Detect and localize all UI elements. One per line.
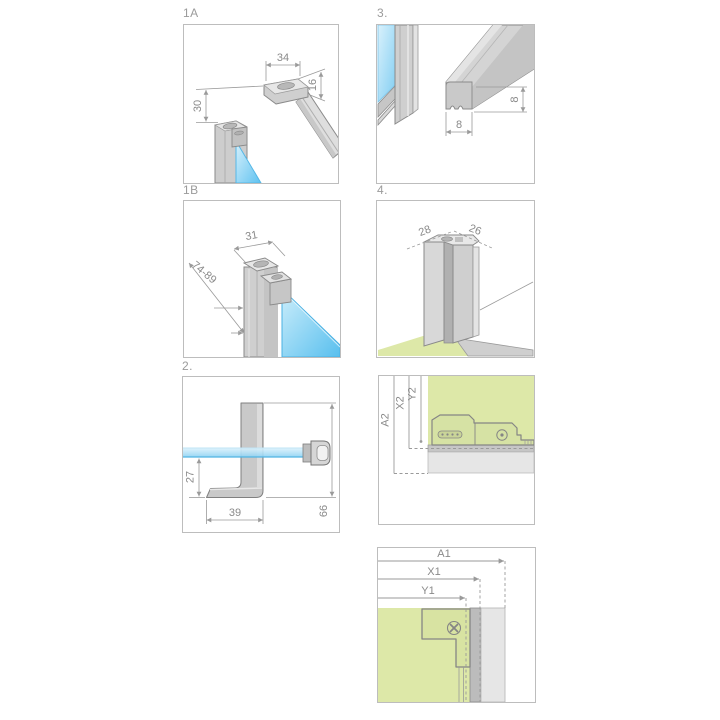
dim-y2-label: Y2 (407, 387, 419, 400)
panel-1b-drawing: 31 74-89 (184, 201, 340, 357)
support-bar (296, 92, 338, 158)
dim-left-label: 28 (417, 223, 433, 239)
panel-3: 8 8 (376, 24, 535, 184)
dim-total-label: 66 (318, 505, 330, 517)
dim-base-label: 8 (456, 119, 462, 131)
panel-1b-label: 1B (183, 183, 199, 197)
panel-4-label: 4. (377, 183, 388, 197)
panel-1b: 31 74-89 (183, 200, 341, 358)
dim-x2-label: X2 (395, 396, 407, 409)
bottom-profile-strip (455, 338, 533, 356)
glass-pane (183, 448, 305, 457)
panel-1a-label: 1A (183, 6, 199, 20)
dim-side-label: 8 (509, 96, 521, 102)
dim-foot-label: 39 (229, 507, 241, 519)
glass-clamp-profile (215, 121, 261, 183)
dim-a1-label: A1 (437, 548, 450, 560)
wall-profile-strip (470, 608, 481, 702)
dim-offset-label: 30 (192, 100, 204, 112)
leader-line (480, 282, 533, 310)
panel-a2-drawing: A2 X2 Y2 (379, 376, 534, 524)
panel-4: 28 26 (376, 200, 535, 358)
panel-1a-drawing: 34 16 30 (184, 25, 338, 183)
screw-icon (448, 622, 461, 635)
panel-a1: A1 X1 Y1 (377, 547, 536, 703)
wall-profile-band (428, 452, 534, 473)
glass-pane (236, 141, 261, 183)
panel-2-drawing: 27 39 66 (183, 377, 339, 532)
door-profile-with-glass (378, 25, 418, 125)
panel-4-drawing: 28 26 (377, 201, 534, 357)
dim-width-label: 31 (244, 229, 258, 243)
panel-a2: A2 X2 Y2 (378, 375, 535, 525)
panel-3-drawing: 8 8 (377, 25, 534, 183)
corner-profile (424, 235, 479, 346)
wall-band (481, 608, 505, 702)
seal-profile-bar (446, 25, 534, 109)
dim-y1-label: Y1 (421, 585, 434, 597)
diagram-canvas: 1A 3. 1B 4. 2. (0, 0, 720, 720)
panel-2-label: 2. (182, 359, 193, 373)
panel-a1-drawing: A1 X1 Y1 (378, 548, 535, 702)
panel-3-label: 3. (377, 6, 388, 20)
mounting-hole (442, 237, 453, 241)
dim-x1-label: X1 (427, 566, 440, 578)
dim-a2-label: A2 (380, 413, 392, 426)
panel-2: 27 39 66 (182, 376, 340, 533)
dim-height-label: 16 (307, 79, 319, 91)
glass-clamp-knob (303, 441, 330, 465)
wall-profile (244, 258, 278, 357)
dim-width-label: 34 (277, 52, 289, 64)
dim-drop-label: 27 (185, 471, 197, 483)
panel-1a: 34 16 30 (183, 24, 339, 184)
